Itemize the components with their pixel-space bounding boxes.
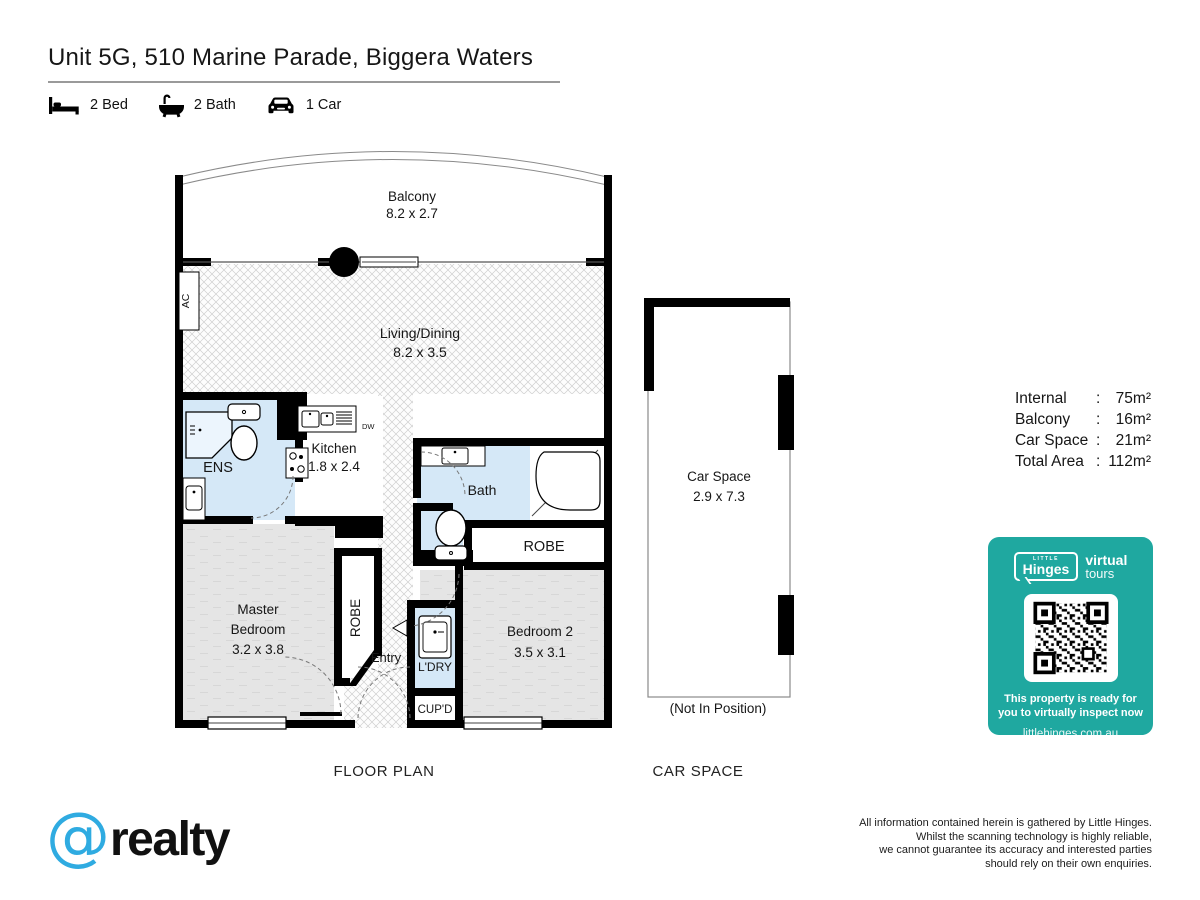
floorplan-page: { "header": { "title": "Unit 5G, 510 Mar…	[0, 0, 1200, 900]
dishwasher-label: DW	[362, 422, 375, 431]
area-row-sep: :	[1096, 411, 1100, 429]
robe-bed2-label: ROBE	[523, 539, 564, 555]
badge-message-line2: you to virtually inspect now	[988, 706, 1153, 720]
floor-plan-section-label: FLOOR PLAN	[284, 763, 484, 780]
disclaimer: All information contained herein is gath…	[859, 817, 1152, 871]
page-title: Unit 5G, 510 Marine Parade, Biggera Wate…	[48, 44, 533, 72]
vanity-ensuite	[183, 478, 205, 520]
entry-label: Entry	[371, 650, 402, 665]
badge-message-line1: This property is ready for	[988, 692, 1153, 706]
area-row-value: 112m²	[1108, 453, 1151, 471]
kitchen-label: Kitchen	[311, 441, 356, 456]
bath-icon	[158, 93, 185, 118]
car-space-note: (Not In Position)	[670, 701, 767, 716]
title-underline	[48, 81, 560, 83]
balcony-arc	[179, 152, 607, 186]
feature-beds-label: 2 Bed	[90, 97, 128, 113]
disclaimer-line: Whilst the scanning technology is highly…	[859, 831, 1152, 845]
ensuite-label: ENS	[203, 460, 233, 476]
bedroom2-dims: 3.5 x 3.1	[514, 645, 566, 660]
car-icon	[266, 95, 297, 116]
badge-message: This property is ready for you to virtua…	[988, 692, 1153, 720]
bubble-tail-icon	[1017, 577, 1031, 584]
robe-master-label: ROBE	[348, 599, 363, 637]
feature-cars: 1 Car	[266, 95, 341, 116]
feature-baths-label: 2 Bath	[194, 97, 236, 113]
area-row-value: 21m²	[1116, 432, 1151, 450]
area-row-value: 75m²	[1116, 390, 1151, 408]
area-row-label: Car Space	[1015, 432, 1088, 450]
qr-code	[1024, 594, 1118, 682]
feature-cars-label: 1 Car	[306, 97, 341, 113]
realty-wordmark: realty	[110, 815, 229, 865]
master-label-1: Master	[237, 602, 279, 617]
feature-beds: 2 Bed	[48, 94, 128, 117]
cupboard-label: CUP'D	[418, 704, 453, 716]
bed-icon	[48, 94, 81, 117]
cooktop	[286, 448, 308, 478]
ac-unit: AC	[179, 272, 199, 330]
master-label-2: Bedroom	[231, 622, 286, 637]
bath-label: Bath	[468, 482, 497, 498]
wordmark-tours: tours	[1085, 567, 1127, 580]
bathtub	[532, 450, 600, 516]
virtual-tour-badge: LITTLE Hinges virtual tours	[988, 537, 1153, 735]
car-space-dims: 2.9 x 7.3	[693, 489, 745, 504]
area-row-sep: :	[1096, 390, 1100, 408]
wordmark-virtual: virtual	[1085, 554, 1127, 567]
toilet-bath	[435, 510, 467, 560]
living-label: Living/Dining	[380, 325, 460, 341]
master-dims: 3.2 x 3.8	[232, 642, 284, 657]
area-row-value: 16m²	[1116, 411, 1151, 429]
feature-baths: 2 Bath	[158, 93, 236, 118]
balcony-dims: 8.2 x 2.7	[386, 206, 438, 221]
column	[329, 247, 359, 277]
badge-url: littlehinges.com.au	[988, 728, 1153, 740]
hinges-bubble: LITTLE Hinges	[1014, 552, 1079, 581]
area-row-sep: :	[1096, 432, 1100, 450]
brand-hinges: Hinges	[1023, 562, 1070, 576]
disclaimer-line: we cannot guarantee its accuracy and int…	[859, 844, 1152, 858]
area-row-label: Balcony	[1015, 411, 1070, 429]
kitchen-dims: 1.8 x 2.4	[308, 459, 360, 474]
realty-logo: @realty	[46, 795, 229, 865]
disclaimer-line: All information contained herein is gath…	[859, 817, 1152, 831]
balcony-label: Balcony	[388, 189, 436, 204]
virtual-tours-wordmark: virtual tours	[1085, 554, 1127, 580]
vanity-bath	[421, 446, 485, 466]
area-row-label: Internal	[1015, 390, 1067, 408]
bedroom2-label: Bedroom 2	[507, 624, 573, 639]
sliding-door	[360, 257, 418, 267]
feature-summary: 2 Bed 2 Bath 1 Car	[48, 90, 341, 120]
area-summary: Internal : 75m² Balcony : 16m² Car Space…	[1015, 390, 1151, 471]
living-dims: 8.2 x 3.5	[393, 344, 447, 360]
realty-at-icon: @	[46, 809, 110, 865]
qr-code-icon	[1032, 601, 1110, 675]
floor-plan: AC	[172, 130, 612, 730]
area-row-sep: :	[1096, 453, 1100, 471]
car-space-label: Car Space	[687, 469, 751, 484]
car-space-section-label: CAR SPACE	[598, 763, 798, 780]
disclaimer-line: should rely on their own enquiries.	[859, 858, 1152, 872]
car-space-plan: Car Space 2.9 x 7.3 (Not In Position)	[630, 290, 810, 720]
laundry-label: L'DRY	[418, 660, 452, 674]
ac-label: AC	[180, 293, 192, 308]
area-row-label: Total Area	[1015, 453, 1084, 471]
little-hinges-logo: LITTLE Hinges virtual tours	[988, 552, 1153, 581]
